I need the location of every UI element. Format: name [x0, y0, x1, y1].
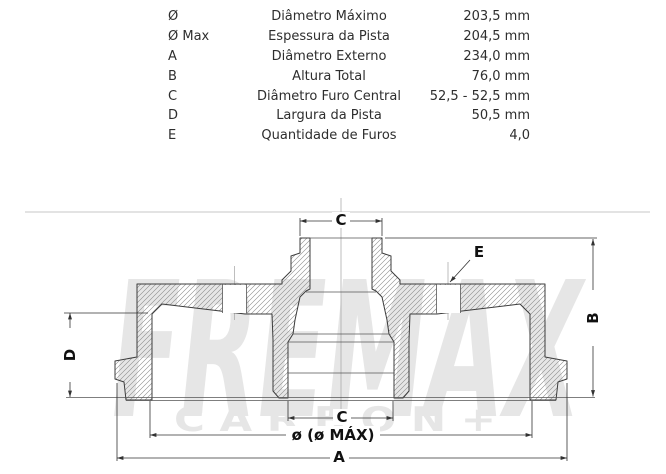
dimension-diameter-max-label: ø (ø MÁX)	[292, 425, 375, 444]
dimension-a-label: A	[333, 448, 345, 466]
dimension-e-label: E	[474, 243, 484, 261]
technical-drawing: FREMAX C A R B O N +	[0, 0, 666, 474]
dimension-c-bottom-label: C	[336, 408, 347, 426]
dimension-d-label: D	[61, 349, 79, 361]
bolt-hole-right	[437, 284, 461, 313]
spec-sheet-page: Ø Diâmetro Máximo 203,5 mm Ø Max Espessu…	[0, 0, 666, 474]
dimension-b-label: B	[584, 312, 602, 323]
dimension-c-top-label: C	[335, 211, 346, 229]
bolt-hole-left	[223, 284, 247, 313]
